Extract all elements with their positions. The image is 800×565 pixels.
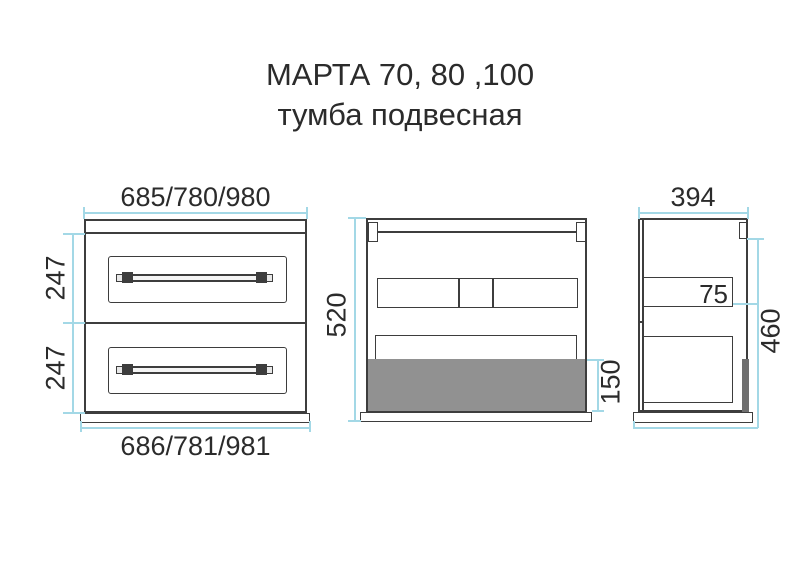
back-hanging-bracket-right [576,222,586,242]
side-drawer-box [643,336,733,403]
back-lower-band [375,335,577,360]
side-dim-bottom-line [633,427,758,429]
front-dim-width-bottom-line [80,427,310,429]
back-hanging-bracket-left [368,222,378,242]
back-stretcher-divider-left [458,278,460,308]
front-top-strip-line [84,232,307,234]
front-dim-drawer1-label: 247 [41,255,72,300]
dim-tick [80,421,82,432]
handle-block-left [122,364,133,375]
dim-tick [633,421,635,428]
back-plinth [360,412,592,422]
front-dim-width-top-label: 685/780/980 [84,182,307,213]
dim-tick [638,207,640,219]
side-dim-apron-label: 75 [643,279,728,310]
front-dim-drawer2-label: 247 [41,345,72,390]
side-dim-depth-label: 394 [638,182,748,213]
back-hanging-rail-line [378,231,576,233]
front-drawer-divider-line [84,322,307,324]
dim-tick [63,322,85,324]
front-dim-width-top-line [83,212,307,214]
dim-tick [63,412,85,414]
back-stretcher-band [377,278,578,308]
side-plinth [633,412,753,423]
drawing-title-model: МАРТА 70, 80 ,100 [0,57,800,93]
back-dim-height-line [354,217,356,421]
back-stretcher-divider-right [492,278,494,308]
dim-tick [747,207,749,219]
back-dim-bottom-panel-label: 150 [596,359,627,404]
side-back-panel-strip [742,359,749,412]
dim-tick [83,207,85,219]
front-dim-width-bottom-label: 686/781/981 [84,431,307,462]
side-dim-depth-line [638,212,748,214]
dim-tick [306,207,308,219]
side-hanging-bracket [739,222,747,239]
side-front-divider-tick [638,321,644,323]
dim-tick [747,238,764,240]
side-apron-ext-line [733,303,758,305]
handle-stub-right [266,274,273,282]
handle-block-left [122,272,133,283]
front-plinth [80,413,310,423]
dim-tick [63,233,85,235]
handle-bar [133,274,257,282]
handle-stub-right [266,366,273,374]
drawing-title-subtitle: тумба подвесная [0,97,800,133]
dim-tick [348,217,366,219]
dim-tick [309,421,311,432]
handle-bar [133,366,257,374]
technical-drawing-canvas: МАРТА 70, 80 ,100 тумба подвесная [0,0,800,565]
back-bottom-gray-panel [368,359,585,411]
front-dim-height-line [72,233,74,414]
back-dim-height-label: 520 [322,292,353,337]
side-dim-height-label: 460 [756,308,787,353]
